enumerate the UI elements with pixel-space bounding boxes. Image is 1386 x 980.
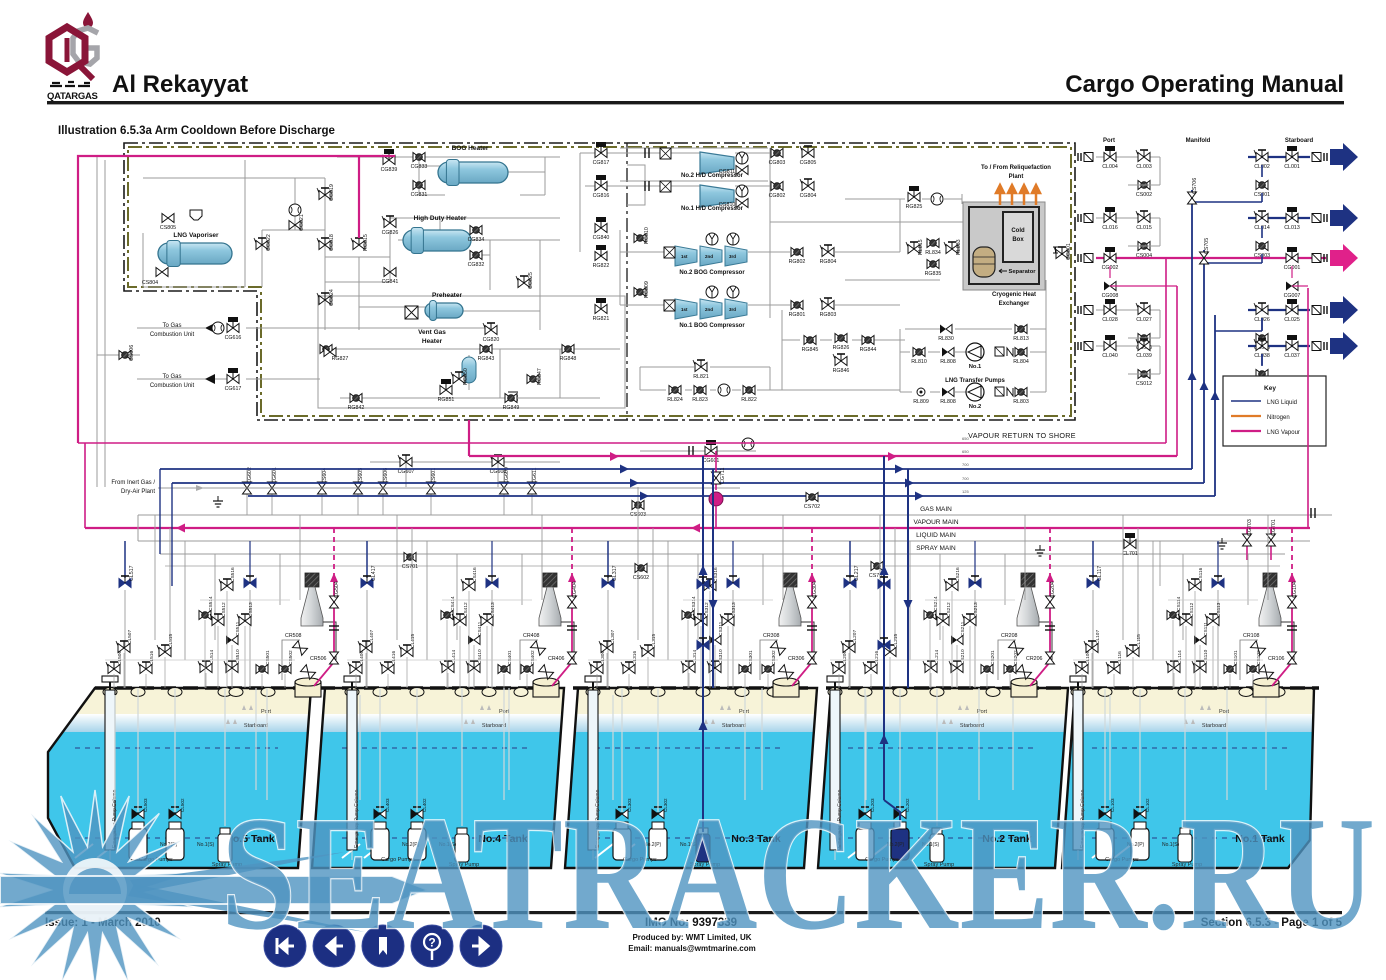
svg-text:CR508: CR508 xyxy=(285,633,302,639)
svg-text:CS314: CS314 xyxy=(691,596,697,611)
svg-text:CG304: CG304 xyxy=(812,581,818,598)
svg-text:CL016: CL016 xyxy=(1102,225,1118,231)
svg-text:CS002: CS002 xyxy=(1136,192,1152,198)
svg-text:CS214: CS214 xyxy=(933,596,939,611)
svg-text:CL516: CL516 xyxy=(149,651,155,665)
svg-text:CL515: CL515 xyxy=(168,634,174,648)
svg-text:No.2: No.2 xyxy=(969,404,982,410)
svg-text:CS313: CS313 xyxy=(731,602,737,617)
svg-text:CS213: CS213 xyxy=(973,602,979,617)
svg-text:CL407: CL407 xyxy=(369,630,375,644)
svg-text:RL834: RL834 xyxy=(925,250,941,256)
svg-text:CL116: CL116 xyxy=(1117,651,1123,665)
svg-text:CG818: CG818 xyxy=(329,234,335,251)
svg-text:Cold: Cold xyxy=(1011,228,1025,234)
svg-text:CL106: CL106 xyxy=(1085,651,1091,665)
svg-text:QATARGAS: QATARGAS xyxy=(47,91,98,102)
svg-text:LNG Vapour: LNG Vapour xyxy=(1267,430,1300,436)
svg-text:3rd: 3rd xyxy=(729,307,736,312)
svg-text:RL823: RL823 xyxy=(692,397,708,403)
svg-text:CS416: CS416 xyxy=(472,567,478,582)
svg-text:1st: 1st xyxy=(681,307,688,312)
svg-text:Manifold: Manifold xyxy=(1186,138,1211,144)
svg-text:CS113: CS113 xyxy=(1216,602,1222,617)
svg-text:Combustion Unit: Combustion Unit xyxy=(150,383,195,389)
svg-text:Preheater: Preheater xyxy=(432,292,462,299)
svg-text:CS411: CS411 xyxy=(477,621,483,636)
svg-text:CG820: CG820 xyxy=(483,337,500,343)
svg-text:CG825: CG825 xyxy=(528,272,534,289)
svg-text:650: 650 xyxy=(962,436,969,441)
svg-text:CG617: CG617 xyxy=(225,386,242,392)
svg-text:RG827: RG827 xyxy=(332,356,349,362)
svg-text:Starboard: Starboard xyxy=(1285,138,1314,144)
svg-text:Port: Port xyxy=(1103,138,1115,144)
svg-text:CL414: CL414 xyxy=(451,650,457,664)
svg-text:CS511: CS511 xyxy=(235,621,241,636)
svg-text:CS301: CS301 xyxy=(748,650,754,665)
svg-text:CS804: CS804 xyxy=(142,280,158,286)
svg-text:CR506: CR506 xyxy=(310,656,327,662)
svg-text:CL507: CL507 xyxy=(127,630,133,644)
svg-text:CL004: CL004 xyxy=(1102,164,1118,170)
svg-text:CS516: CS516 xyxy=(230,567,236,582)
svg-text:Illustration 6.5.3a Arm Cooldo: Illustration 6.5.3a Arm Cooldown Before … xyxy=(58,125,335,137)
svg-text:LNG Vaporiser: LNG Vaporiser xyxy=(173,232,219,239)
svg-text:RG843: RG843 xyxy=(478,356,495,362)
svg-text:RL833: RL833 xyxy=(956,239,962,255)
svg-text:CL027: CL027 xyxy=(1136,317,1152,323)
svg-text:CL117: CL117 xyxy=(1097,566,1103,581)
svg-text:CG616: CG616 xyxy=(225,335,242,341)
svg-text:Box: Box xyxy=(1012,237,1024,243)
svg-text:CS402: CS402 xyxy=(530,650,536,665)
svg-text:Combustion Unit: Combustion Unit xyxy=(150,332,195,338)
svg-text:CS210: CS210 xyxy=(960,649,966,664)
svg-text:CS201: CS201 xyxy=(990,650,996,665)
svg-text:CG819: CG819 xyxy=(329,184,335,201)
svg-text:Starboard: Starboard xyxy=(722,723,746,729)
svg-text:CS514: CS514 xyxy=(208,596,214,611)
svg-text:CL307: CL307 xyxy=(610,630,616,644)
svg-text:SPRAY MAIN: SPRAY MAIN xyxy=(916,545,956,552)
svg-text:CG816: CG816 xyxy=(593,193,610,199)
svg-text:RL809: RL809 xyxy=(913,399,929,405)
svg-text:Starboard: Starboard xyxy=(960,723,984,729)
svg-text:LIQUID MAIN: LIQUID MAIN xyxy=(916,532,956,539)
svg-text:CG805: CG805 xyxy=(800,160,817,166)
svg-text:CL215: CL215 xyxy=(893,634,899,648)
svg-text:RG826: RG826 xyxy=(833,345,850,351)
svg-text:RL808: RL808 xyxy=(940,359,956,365)
svg-text:No.2 BOG Compressor: No.2 BOG Compressor xyxy=(679,270,745,276)
svg-text:Starboard: Starboard xyxy=(1202,723,1226,729)
svg-text:CS705: CS705 xyxy=(1204,238,1210,254)
svg-text:To / From Reliquefaction: To / From Reliquefaction xyxy=(981,165,1051,171)
svg-text:RL813: RL813 xyxy=(1013,336,1029,342)
svg-text:CS805: CS805 xyxy=(160,225,176,231)
svg-text:CS401: CS401 xyxy=(507,650,513,665)
svg-text:CL503: CL503 xyxy=(143,798,148,812)
svg-text:CL317: CL317 xyxy=(612,565,618,581)
svg-text:CL217: CL217 xyxy=(854,565,860,581)
svg-text:CS216: CS216 xyxy=(955,567,961,582)
svg-text:CG833: CG833 xyxy=(411,164,428,170)
svg-text:RL815: RL815 xyxy=(918,239,924,255)
svg-text:RG851: RG851 xyxy=(438,397,455,403)
svg-text:CS806: CS806 xyxy=(129,345,135,361)
svg-text:From Inert Gas /: From Inert Gas / xyxy=(111,480,155,486)
svg-text:RL824: RL824 xyxy=(667,397,683,403)
svg-text:RG821: RG821 xyxy=(593,316,610,322)
svg-text:CS311: CS311 xyxy=(718,621,724,636)
svg-text:CS212: CS212 xyxy=(946,602,952,617)
svg-text:CG810: CG810 xyxy=(719,202,736,208)
svg-text:CL040: CL040 xyxy=(1102,353,1118,359)
svg-text:CL039: CL039 xyxy=(1136,353,1152,359)
svg-text:RL821: RL821 xyxy=(693,374,709,380)
svg-text:CL107: CL107 xyxy=(1095,630,1101,644)
svg-text:RG850: RG850 xyxy=(463,368,469,385)
svg-text:RL810: RL810 xyxy=(911,359,927,365)
svg-text:CG404: CG404 xyxy=(572,581,578,598)
svg-text:CS312: CS312 xyxy=(704,602,710,617)
svg-text:CS112: CS112 xyxy=(1189,602,1195,617)
svg-text:CL037: CL037 xyxy=(1284,353,1300,359)
svg-text:CS605: CS605 xyxy=(358,468,364,484)
svg-text:No.1 BOG Compressor: No.1 BOG Compressor xyxy=(679,323,745,329)
svg-text:To Gas: To Gas xyxy=(162,323,181,329)
svg-text:CR208: CR208 xyxy=(1001,633,1018,639)
svg-text:CG832: CG832 xyxy=(468,262,485,268)
svg-text:CS606: CS606 xyxy=(383,468,389,484)
svg-text:CL206: CL206 xyxy=(842,651,848,665)
svg-text:CL416: CL416 xyxy=(391,651,397,665)
svg-text:CG822: CG822 xyxy=(266,234,272,251)
svg-text:CS116: CS116 xyxy=(1198,567,1204,582)
svg-text:2nd: 2nd xyxy=(705,254,713,259)
svg-text:CL306: CL306 xyxy=(600,651,606,665)
svg-text:CL025: CL025 xyxy=(1284,317,1300,323)
svg-text:RG842: RG842 xyxy=(348,405,365,411)
svg-text:Exchanger: Exchanger xyxy=(999,301,1030,307)
svg-text:Port: Port xyxy=(1219,709,1230,715)
svg-text:RG802: RG802 xyxy=(789,259,806,265)
svg-text:CL214: CL214 xyxy=(934,650,940,664)
svg-text:Nitrogen: Nitrogen xyxy=(1267,415,1290,421)
svg-text:VAPOUR MAIN: VAPOUR MAIN xyxy=(913,519,958,526)
svg-text:3rd: 3rd xyxy=(729,254,736,259)
svg-text:To Gas: To Gas xyxy=(162,374,181,380)
svg-text:GAS MAIN: GAS MAIN xyxy=(920,506,952,513)
svg-text:CG008: CG008 xyxy=(1102,293,1119,299)
svg-text:CG840: CG840 xyxy=(593,235,610,241)
svg-text:CS604: CS604 xyxy=(322,468,328,484)
svg-text:RG801: RG801 xyxy=(789,312,806,318)
svg-text:CL415: CL415 xyxy=(410,634,416,648)
svg-text:CS701: CS701 xyxy=(402,564,418,570)
svg-text:LNG Liquid: LNG Liquid xyxy=(1267,400,1297,406)
svg-text:CL417: CL417 xyxy=(371,565,377,581)
svg-text:CL001: CL001 xyxy=(1284,164,1300,170)
svg-text:CG831: CG831 xyxy=(411,192,428,198)
svg-text:RL803: RL803 xyxy=(1013,399,1029,405)
svg-text:SEATRACKER.RU: SEATRACKER.RU xyxy=(221,784,1375,964)
svg-text:CG811: CG811 xyxy=(719,169,735,175)
svg-text:Cargo Operating Manual: Cargo Operating Manual xyxy=(1065,71,1344,98)
svg-text:CG803: CG803 xyxy=(769,160,786,166)
svg-text:CS501: CS501 xyxy=(265,650,271,665)
svg-text:CS602: CS602 xyxy=(633,575,649,581)
svg-text:CL314: CL314 xyxy=(692,650,698,664)
svg-text:CS102: CS102 xyxy=(1256,650,1262,665)
svg-text:CL316: CL316 xyxy=(632,651,638,665)
svg-text:CS302: CS302 xyxy=(771,650,777,665)
svg-text:CG703: CG703 xyxy=(1247,519,1253,536)
svg-text:RG822: RG822 xyxy=(593,263,610,269)
svg-text:Port: Port xyxy=(261,709,272,715)
svg-text:RG803: RG803 xyxy=(820,312,837,318)
svg-text:RG835: RG835 xyxy=(925,271,942,277)
svg-text:CS202: CS202 xyxy=(1013,650,1019,665)
svg-text:CS414: CS414 xyxy=(450,596,456,611)
svg-text:BOG Heater: BOG Heater xyxy=(452,145,489,152)
svg-text:CS412: CS412 xyxy=(463,602,469,617)
svg-text:CS510: CS510 xyxy=(235,649,241,664)
svg-text:CS310: CS310 xyxy=(718,649,724,664)
svg-text:CG711: CG711 xyxy=(720,468,726,484)
svg-text:700: 700 xyxy=(962,462,969,467)
svg-text:RG849: RG849 xyxy=(503,405,520,411)
svg-text:CL207: CL207 xyxy=(852,630,858,644)
svg-text:CL028: CL028 xyxy=(1102,317,1118,323)
svg-text:CS410: CS410 xyxy=(477,649,483,664)
svg-text:CL502: CL502 xyxy=(180,798,185,812)
svg-text:Key: Key xyxy=(1264,385,1276,392)
svg-text:Separator: Separator xyxy=(1008,269,1036,275)
svg-text:CG841: CG841 xyxy=(382,279,399,285)
svg-text:Cryogenic Heat: Cryogenic Heat xyxy=(992,292,1036,298)
svg-text:CL506: CL506 xyxy=(117,651,123,665)
svg-text:650: 650 xyxy=(962,449,969,454)
svg-text:CG802: CG802 xyxy=(769,193,786,199)
svg-text:CS513: CS513 xyxy=(248,602,254,617)
svg-text:CG504: CG504 xyxy=(334,581,340,598)
svg-text:CG611: CG611 xyxy=(532,468,538,484)
svg-text:Al Rekayyat: Al Rekayyat xyxy=(112,71,248,98)
svg-text:CS211: CS211 xyxy=(960,621,966,636)
svg-text:CG824: CG824 xyxy=(329,289,335,306)
svg-text:CL701: CL701 xyxy=(1122,551,1138,557)
svg-text:No.1: No.1 xyxy=(969,364,982,370)
svg-text:CL517: CL517 xyxy=(129,565,135,581)
svg-text:Port: Port xyxy=(739,709,750,715)
svg-text:CG007: CG007 xyxy=(1284,293,1301,299)
svg-text:RG844: RG844 xyxy=(860,347,877,353)
svg-text:CL003: CL003 xyxy=(1136,164,1152,170)
svg-text:CG821: CG821 xyxy=(299,214,305,231)
svg-text:CR406: CR406 xyxy=(548,656,565,662)
svg-text:RG847: RG847 xyxy=(537,368,543,385)
svg-text:RG825: RG825 xyxy=(906,204,923,210)
svg-text:RG815: RG815 xyxy=(363,234,369,251)
svg-text:RL804: RL804 xyxy=(1013,359,1029,365)
svg-text:CG804: CG804 xyxy=(800,193,817,199)
svg-text:Dry-Air Plant: Dry-Air Plant xyxy=(121,489,155,495)
svg-text:CL406: CL406 xyxy=(359,651,365,665)
svg-text:CS012: CS012 xyxy=(1136,381,1152,387)
svg-text:RG804: RG804 xyxy=(820,259,837,265)
svg-text:CR308: CR308 xyxy=(763,633,780,639)
svg-text:CG839: CG839 xyxy=(381,167,398,173)
svg-text:RG848: RG848 xyxy=(560,356,577,362)
svg-text:CS111: CS111 xyxy=(1203,622,1209,636)
svg-text:CL514: CL514 xyxy=(209,650,215,664)
svg-text:RG845: RG845 xyxy=(802,347,819,353)
svg-text:CS702: CS702 xyxy=(804,504,820,510)
svg-text:CG701: CG701 xyxy=(1271,519,1277,536)
svg-text:CS706: CS706 xyxy=(1192,178,1198,194)
svg-text:CG817: CG817 xyxy=(593,160,610,166)
svg-text:CR106: CR106 xyxy=(1268,656,1285,662)
svg-text:Plant: Plant xyxy=(1009,174,1024,180)
svg-text:CS114: CS114 xyxy=(1176,596,1182,611)
svg-text:CG801: CG801 xyxy=(1066,243,1072,260)
svg-text:High Duty Heater: High Duty Heater xyxy=(414,215,467,222)
svg-text:CL114: CL114 xyxy=(1177,650,1183,664)
svg-text:CR306: CR306 xyxy=(788,656,805,662)
svg-text:RG809: RG809 xyxy=(644,281,650,298)
svg-text:CG826: CG826 xyxy=(382,230,399,236)
svg-text:CG601: CG601 xyxy=(703,458,720,464)
svg-text:CR108: CR108 xyxy=(1243,633,1260,639)
svg-text:No.1(S): No.1(S) xyxy=(197,842,215,848)
svg-text:CG104: CG104 xyxy=(1292,581,1298,598)
svg-text:VAPOUR RETURN TO SHORE: VAPOUR RETURN TO SHORE xyxy=(968,431,1076,440)
svg-text:1st: 1st xyxy=(681,254,688,259)
svg-text:2nd: 2nd xyxy=(705,307,713,312)
svg-text:Starboard: Starboard xyxy=(482,723,506,729)
svg-text:RG846: RG846 xyxy=(833,368,850,374)
svg-text:CS110: CS110 xyxy=(1203,649,1209,664)
svg-text:CS101: CS101 xyxy=(1233,650,1239,665)
svg-text:CL216: CL216 xyxy=(874,651,880,665)
svg-text:RL822: RL822 xyxy=(741,397,757,403)
svg-text:CL115: CL115 xyxy=(1136,634,1142,648)
svg-text:Vent Gas: Vent Gas xyxy=(418,329,446,336)
svg-text:CS413: CS413 xyxy=(490,602,496,617)
svg-text:CS512: CS512 xyxy=(221,602,227,617)
svg-text:Heater: Heater xyxy=(422,338,443,345)
svg-text:CL015: CL015 xyxy=(1136,225,1152,231)
svg-text:CL013: CL013 xyxy=(1284,225,1300,231)
svg-text:CS502: CS502 xyxy=(288,650,294,665)
svg-text:700: 700 xyxy=(962,476,969,481)
svg-text:RL808: RL808 xyxy=(940,399,956,405)
svg-text:RL830: RL830 xyxy=(938,336,954,342)
svg-text:125: 125 xyxy=(962,489,969,494)
svg-text:CR206: CR206 xyxy=(1026,656,1043,662)
svg-text:CR408: CR408 xyxy=(523,633,540,639)
svg-text:CS601: CS601 xyxy=(431,468,437,484)
svg-text:CL315: CL315 xyxy=(651,634,657,648)
svg-text:CG204: CG204 xyxy=(1050,581,1056,598)
svg-text:RG810: RG810 xyxy=(644,227,650,244)
svg-text:CG834: CG834 xyxy=(468,237,485,243)
